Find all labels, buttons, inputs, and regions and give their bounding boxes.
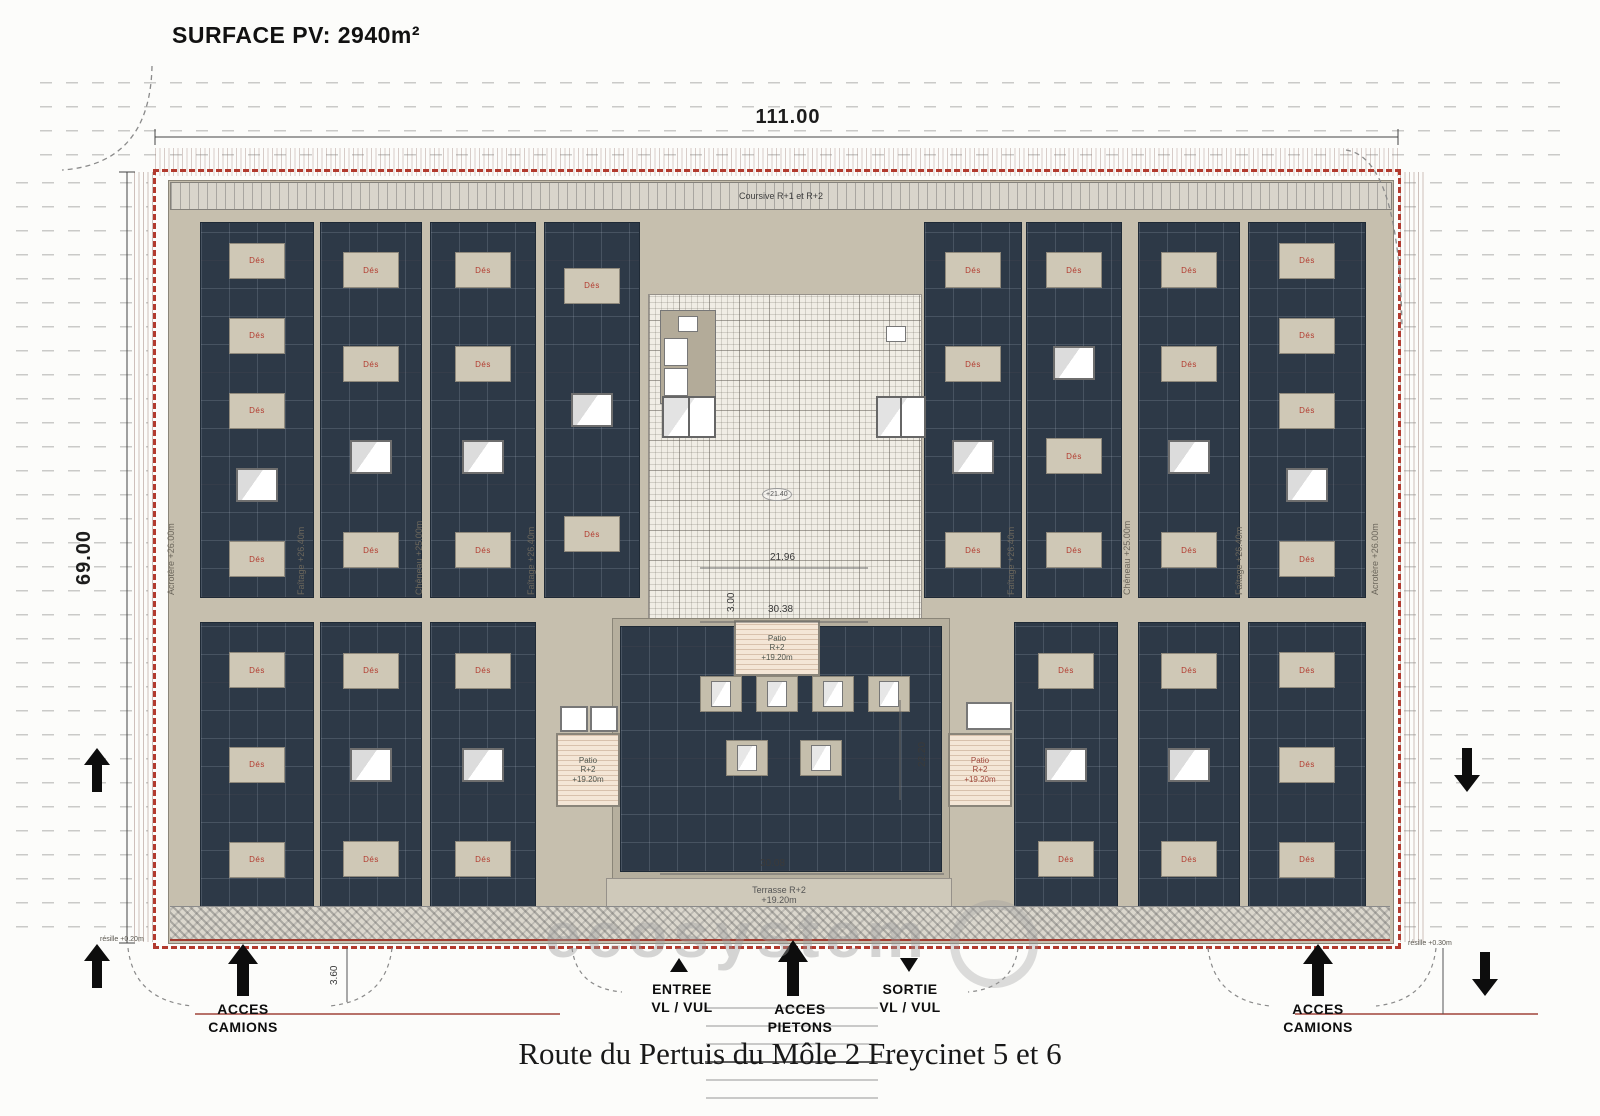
resille-note-right: résille +0.30m: [1408, 940, 1452, 947]
roof-smoke-vent: Dés: [343, 653, 399, 689]
vent-label: Dés: [249, 331, 265, 340]
roof-smoke-vent: Dés: [1279, 318, 1335, 354]
utility-window: [664, 338, 688, 366]
level-marker: +21.40: [762, 488, 792, 501]
vent-label: Dés: [475, 266, 491, 275]
skylight-window: [571, 393, 613, 427]
roof-smoke-vent: Dés: [229, 541, 285, 577]
pv-strip: DésDés: [1014, 622, 1118, 908]
roof-smoke-vent: Dés: [455, 841, 511, 877]
vent-label: Dés: [475, 855, 491, 864]
patio-label: R+2: [770, 643, 785, 653]
roof-label-cheneau: Chêneau +25.00m: [414, 521, 424, 595]
dim-access-lane: 3.60: [329, 966, 340, 985]
quay-texture-right: [1404, 170, 1594, 950]
roof-smoke-vent: Dés: [229, 393, 285, 429]
dim-courtyard-offset: 3.00: [726, 593, 737, 612]
roof-window-unit: [756, 676, 798, 712]
roof-smoke-vent: Dés: [343, 841, 399, 877]
roof-smoke-vent: Dés: [1161, 346, 1217, 382]
hatch-band-right: [1400, 172, 1424, 942]
access-camions-right-label: ACCES CAMIONS: [1238, 1000, 1398, 1036]
skylight-window: [350, 748, 392, 782]
vent-label: Dés: [1181, 855, 1197, 864]
vent-label: Dés: [1299, 760, 1315, 769]
pv-strip: DésDésDésDés: [1248, 222, 1366, 598]
roof-smoke-vent: Dés: [1046, 252, 1102, 288]
pv-strip: DésDésDés: [1248, 622, 1366, 908]
pv-strip: DésDésDés: [1026, 222, 1122, 598]
vent-label: Dés: [1066, 266, 1082, 275]
roof-label-faitage: Faîtage +26.40m: [1234, 527, 1244, 595]
roof-label-faitage: Faîtage +26.40m: [1006, 527, 1016, 595]
dim-patio-block-width: 30.38: [768, 604, 793, 615]
dim-terrasse-width: 30.08: [760, 858, 785, 869]
pv-strip: DésDésDés: [430, 222, 536, 598]
utility-window: [664, 368, 688, 396]
roof-smoke-vent: Dés: [945, 532, 1001, 568]
patio-window: [590, 706, 618, 732]
flow-arrow-down-icon: [1472, 952, 1498, 996]
vent-label: Dés: [1058, 855, 1074, 864]
utility-window: [678, 316, 698, 332]
window-glass: [879, 681, 899, 707]
pv-strip: DésDésDés: [200, 622, 314, 908]
vent-label: Dés: [363, 266, 379, 275]
dim-total-height: 69.00: [73, 530, 96, 585]
vent-label: Dés: [475, 666, 491, 675]
flow-arrow-down-icon: [1454, 748, 1480, 792]
vent-label: Dés: [363, 546, 379, 555]
patio-label: R+2: [581, 765, 596, 775]
pv-strip: DésDés: [544, 222, 640, 598]
vent-label: Dés: [1181, 666, 1197, 675]
roof-smoke-vent: Dés: [229, 842, 285, 878]
resille-note-left: résille +0.20m: [100, 936, 144, 943]
roof-window-unit: [800, 740, 842, 776]
roof-smoke-vent: Dés: [1279, 393, 1335, 429]
gravel-band: [170, 906, 1390, 941]
vent-label: Dés: [1181, 360, 1197, 369]
patio-left: Patio R+2 +19.20m: [556, 733, 620, 807]
truck-access-arrow-icon: [228, 944, 258, 996]
skylight-window: [350, 440, 392, 474]
roof-smoke-vent: Dés: [229, 747, 285, 783]
vent-label: Dés: [363, 666, 379, 675]
access-label-line: VL / VUL: [850, 998, 970, 1016]
roof-smoke-vent: Dés: [1161, 653, 1217, 689]
patio-label: Patio: [971, 756, 989, 766]
roof-smoke-vent: Dés: [343, 346, 399, 382]
roof-smoke-vent: Dés: [343, 532, 399, 568]
roof-smoke-vent: Dés: [455, 252, 511, 288]
skylight-window: [1168, 440, 1210, 474]
window-glass: [811, 745, 831, 771]
vent-label: Dés: [1181, 266, 1197, 275]
access-label-line: CAMIONS: [1238, 1018, 1398, 1036]
roof-smoke-vent: Dés: [229, 318, 285, 354]
vent-label: Dés: [1181, 546, 1197, 555]
roof-label-acrotere: Acrotère +26.00m: [1370, 523, 1380, 595]
access-label-line: PIETONS: [740, 1018, 860, 1036]
site-plan: { "surface_label": "SURFACE PV: 2940m²",…: [0, 0, 1600, 1116]
roof-label-acrotere: Acrotère +26.00m: [166, 523, 176, 595]
roof-label-faitage: Faîtage +26.40m: [526, 527, 536, 595]
access-label-line: ENTREE: [622, 980, 742, 998]
vent-label: Dés: [363, 855, 379, 864]
roof-label-faitage: Faîtage +26.40m: [296, 527, 306, 595]
truck-access-arrow-icon: [1303, 944, 1333, 996]
roof-smoke-vent: Dés: [564, 268, 620, 304]
skylight-window: [1053, 346, 1095, 380]
pv-strip: DésDésDés: [1138, 222, 1240, 598]
patio-label: +19.20m: [572, 775, 603, 785]
sortie-label: SORTIE VL / VUL: [850, 980, 970, 1016]
patio-label: +19.20m: [761, 653, 792, 663]
vent-label: Dés: [249, 855, 265, 864]
access-label-line: ACCES: [1238, 1000, 1398, 1018]
window-glass: [711, 681, 731, 707]
roof-smoke-vent: Dés: [343, 252, 399, 288]
pv-strip: DésDés: [320, 622, 422, 908]
access-label-line: SORTIE: [850, 980, 970, 998]
patio-window: [560, 706, 588, 732]
vent-label: Dés: [584, 530, 600, 539]
skylight-window: [236, 468, 278, 502]
vent-label: Dés: [475, 360, 491, 369]
pedestrian-access-arrow-icon: [778, 940, 808, 996]
access-pietons-label: ACCES PIETONS: [740, 1000, 860, 1036]
patio-label: Patio: [579, 756, 597, 766]
roof-label-cheneau: Chêneau +25.00m: [1122, 521, 1132, 595]
vent-label: Dés: [1058, 666, 1074, 675]
patio-window: [966, 702, 1012, 730]
roof-smoke-vent: Dés: [229, 652, 285, 688]
roof-smoke-vent: Dés: [1038, 653, 1094, 689]
vent-label: Dés: [584, 281, 600, 290]
window-glass: [737, 745, 757, 771]
roof-smoke-vent: Dés: [1046, 438, 1102, 474]
vent-label: Dés: [965, 546, 981, 555]
skylight-window: [462, 440, 504, 474]
courtyard-window: [886, 326, 906, 342]
window-glass: [767, 681, 787, 707]
vent-label: Dés: [249, 256, 265, 265]
hatch-band-top: [155, 148, 1400, 176]
vent-label: Dés: [1299, 406, 1315, 415]
coursive-band: Coursive R+1 et R+2: [170, 182, 1392, 210]
pv-strip: DésDés: [430, 622, 536, 908]
courtyard-skylight: [662, 396, 716, 438]
roof-smoke-vent: Dés: [1279, 842, 1335, 878]
patio-center: Patio R+2 +19.20m: [734, 620, 820, 676]
vent-label: Dés: [965, 360, 981, 369]
roof-smoke-vent: Dés: [1046, 532, 1102, 568]
skylight-window: [1168, 748, 1210, 782]
terrasse-label: +19.20m: [761, 895, 796, 905]
pv-strip: DésDésDés: [320, 222, 422, 598]
roof-window-unit: [700, 676, 742, 712]
skylight-window: [462, 748, 504, 782]
roof-smoke-vent: Dés: [455, 653, 511, 689]
skylight-window: [1286, 468, 1328, 502]
skylight-window: [1045, 748, 1087, 782]
access-label-line: ACCES: [163, 1000, 323, 1018]
roof-smoke-vent: Dés: [1161, 841, 1217, 877]
entree-label: ENTREE VL / VUL: [622, 980, 742, 1016]
pv-strip: DésDés: [1138, 622, 1240, 908]
vent-label: Dés: [475, 546, 491, 555]
roof-smoke-vent: Dés: [1279, 243, 1335, 279]
vent-label: Dés: [249, 406, 265, 415]
roof-smoke-vent: Dés: [455, 532, 511, 568]
vent-label: Dés: [249, 555, 265, 564]
flow-arrow-up-icon: [84, 944, 110, 988]
vent-label: Dés: [1299, 256, 1315, 265]
patio-label: R+2: [973, 765, 988, 775]
vent-label: Dés: [1066, 546, 1082, 555]
vent-label: Dés: [1299, 855, 1315, 864]
skylight-window: [952, 440, 994, 474]
patio-label: +19.20m: [964, 775, 995, 785]
roof-smoke-vent: Dés: [1279, 747, 1335, 783]
roof-smoke-vent: Dés: [1038, 841, 1094, 877]
roof-window-unit: [868, 676, 910, 712]
surface-pv-title: SURFACE PV: 2940m²: [172, 22, 420, 49]
vent-label: Dés: [965, 266, 981, 275]
access-label-line: CAMIONS: [163, 1018, 323, 1036]
courtyard-skylight: [876, 396, 926, 438]
vent-label: Dés: [1299, 331, 1315, 340]
roof-smoke-vent: Dés: [945, 346, 1001, 382]
patio-label: Patio: [768, 634, 786, 644]
roof-smoke-vent: Dés: [1161, 252, 1217, 288]
vent-label: Dés: [1066, 452, 1082, 461]
roof-smoke-vent: Dés: [229, 243, 285, 279]
flow-arrow-up-icon: [84, 748, 110, 792]
roof-smoke-vent: Dés: [1279, 652, 1335, 688]
roof-smoke-vent: Dés: [1161, 532, 1217, 568]
roof-smoke-vent: Dés: [455, 346, 511, 382]
roof-window-unit: [726, 740, 768, 776]
roof-smoke-vent: Dés: [1279, 541, 1335, 577]
access-camions-left-label: ACCES CAMIONS: [163, 1000, 323, 1036]
dim-total-width: 111.00: [733, 106, 843, 129]
access-label-line: VL / VUL: [622, 998, 742, 1016]
vent-label: Dés: [1299, 666, 1315, 675]
dim-center-block-height: 22.20: [917, 742, 928, 767]
patio-right: Patio R+2 +19.20m: [948, 733, 1012, 807]
access-label-line: ACCES: [740, 1000, 860, 1018]
entree-arrow-icon: [670, 958, 688, 972]
dim-courtyard-width: 21.96: [770, 552, 795, 563]
hatch-band-left: [134, 172, 156, 942]
vent-label: Dés: [249, 760, 265, 769]
roof-window-unit: [812, 676, 854, 712]
vent-label: Dés: [363, 360, 379, 369]
sortie-arrow-icon: [900, 958, 918, 972]
roof-smoke-vent: Dés: [945, 252, 1001, 288]
roof-smoke-vent: Dés: [564, 516, 620, 552]
terrasse-label: Terrasse R+2: [752, 885, 806, 895]
window-glass: [823, 681, 843, 707]
vent-label: Dés: [1299, 555, 1315, 564]
street-title: Route du Pertuis du Môle 2 Freycinet 5 e…: [440, 1036, 1140, 1072]
vent-label: Dés: [249, 666, 265, 675]
coursive-label: Coursive R+1 et R+2: [739, 191, 823, 201]
